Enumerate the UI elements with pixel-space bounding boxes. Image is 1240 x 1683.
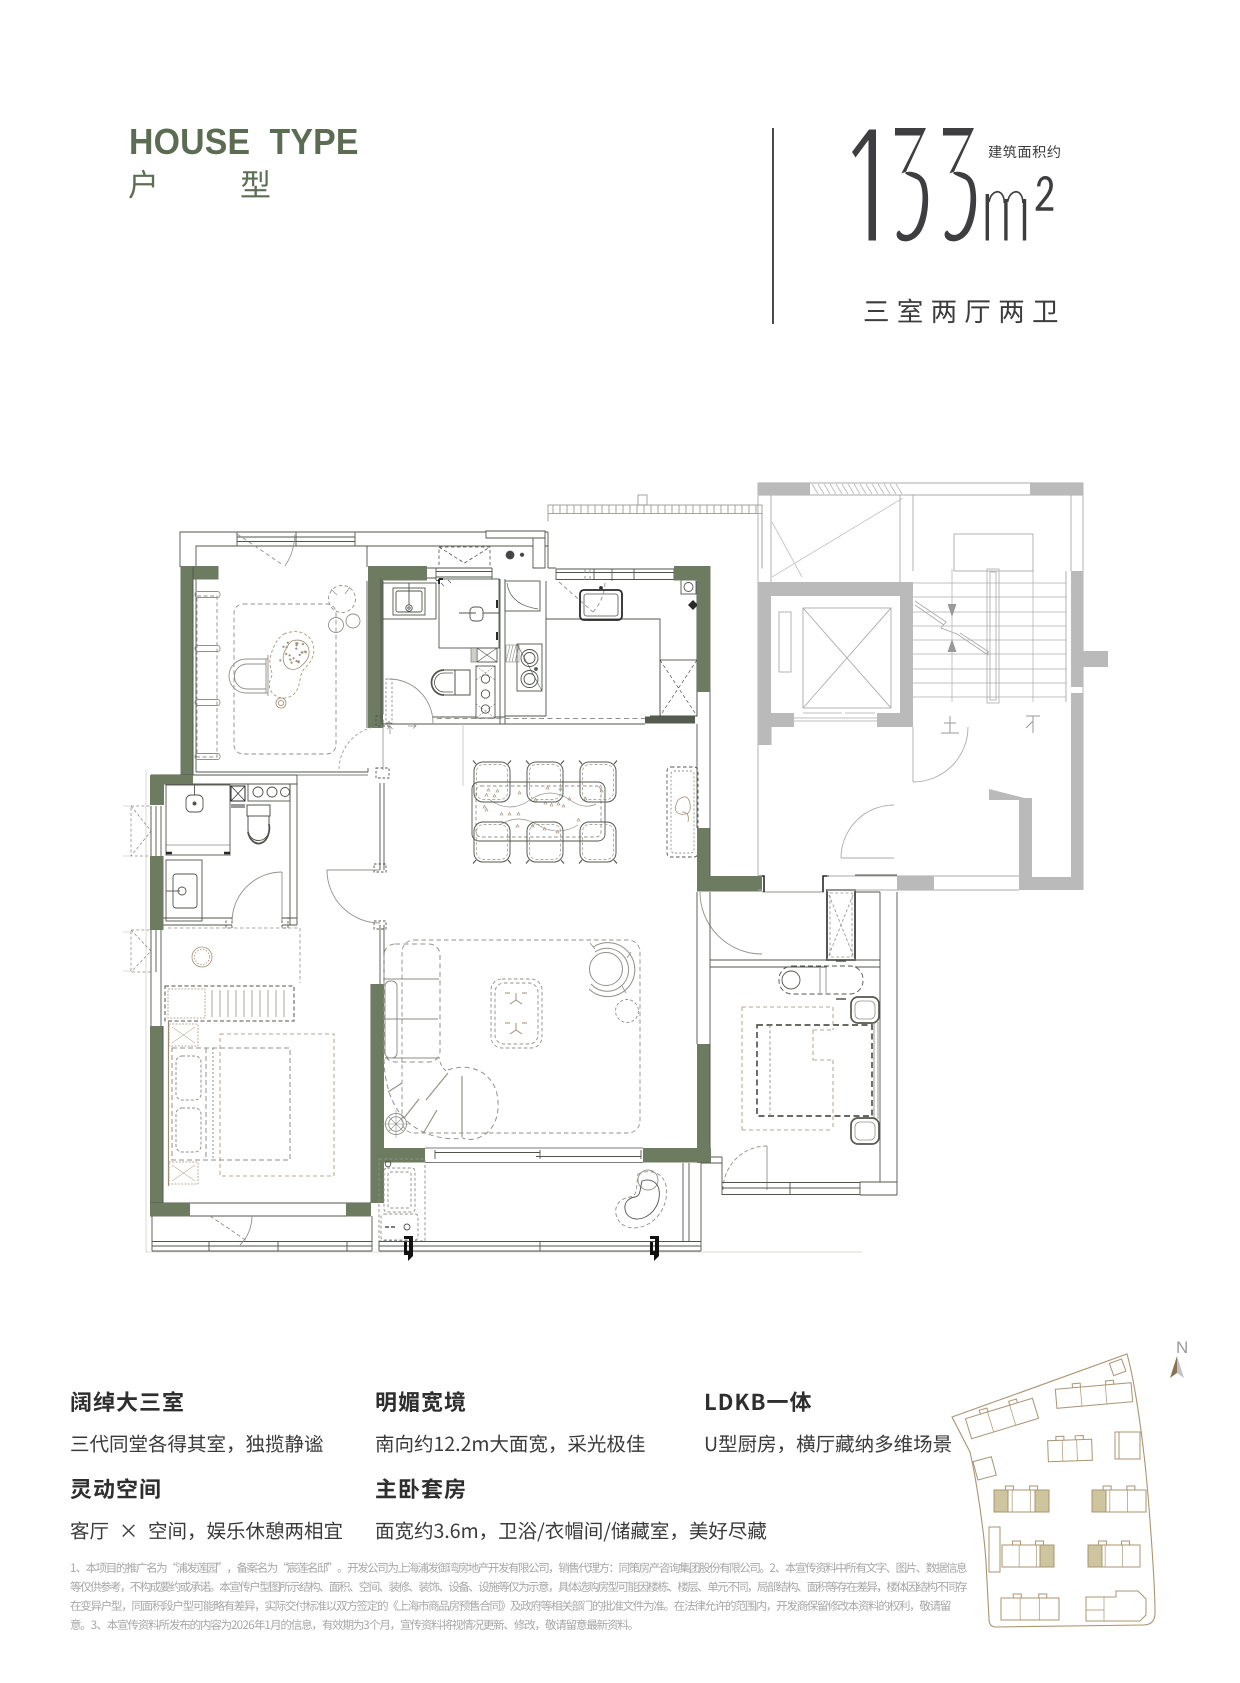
svg-text:N: N [1176, 1338, 1188, 1357]
